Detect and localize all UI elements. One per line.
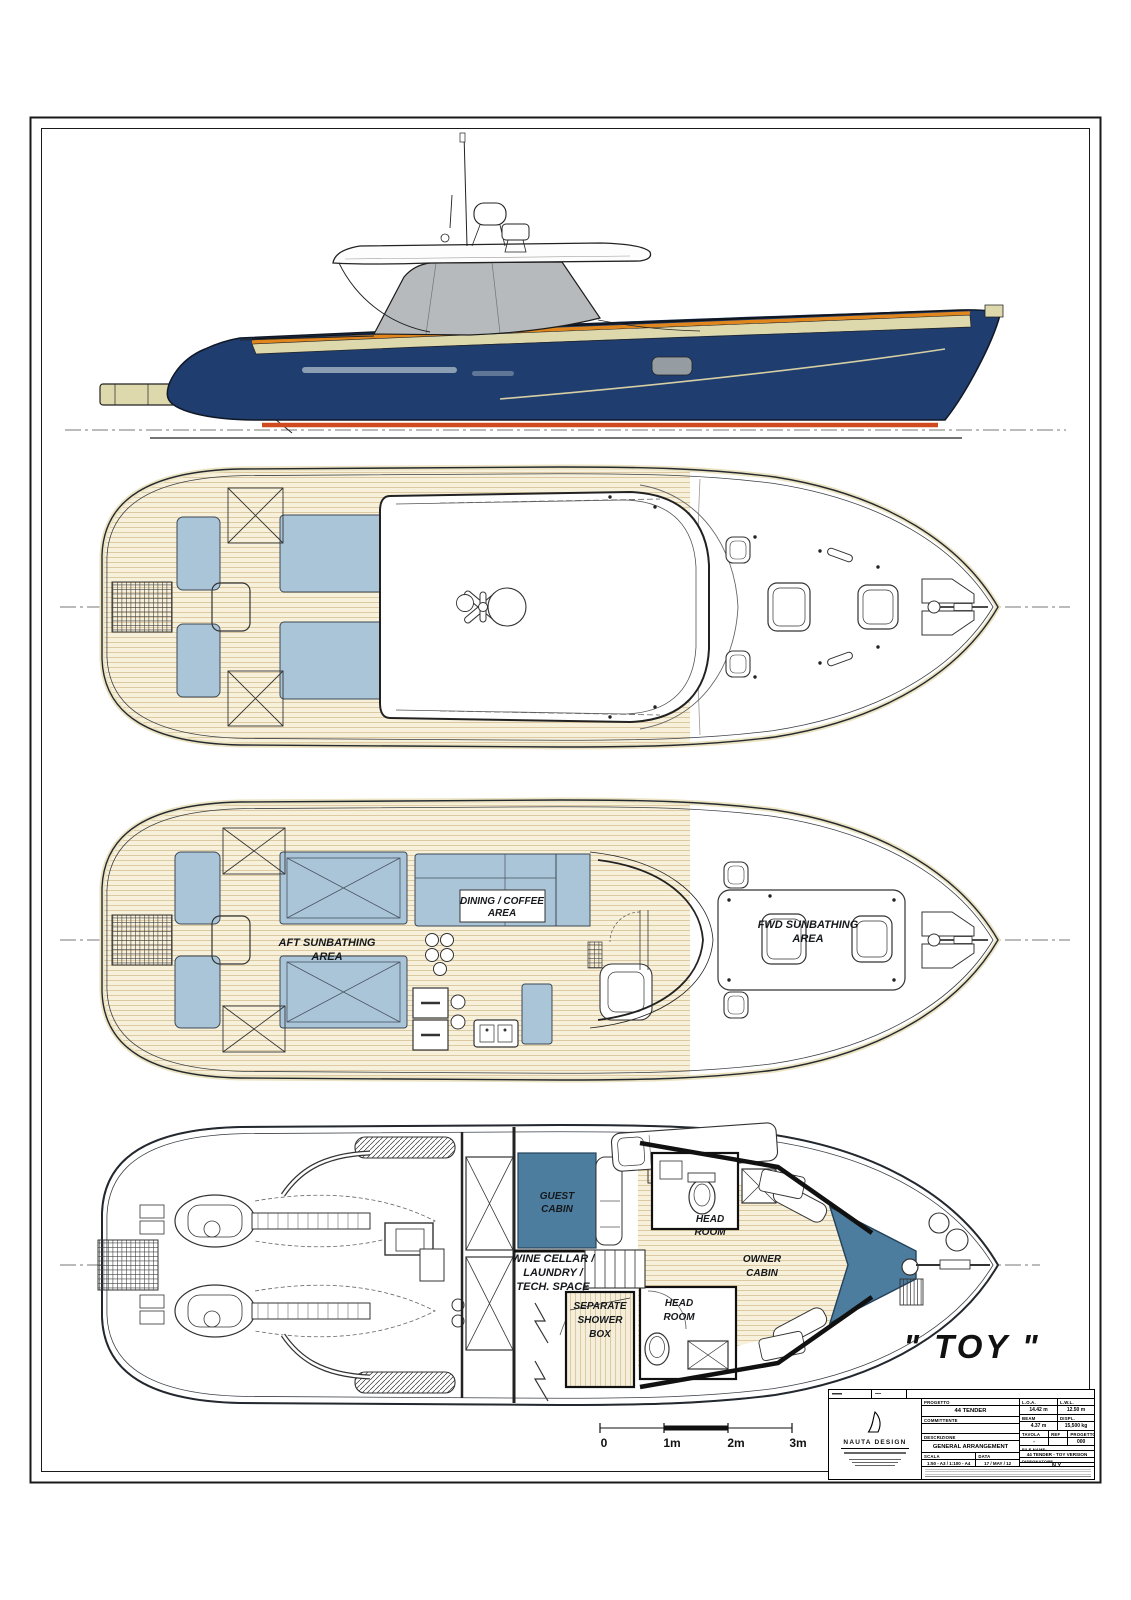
scale-tick-0: 0 xyxy=(601,1436,608,1450)
hull-highlight-2 xyxy=(472,371,514,376)
burner-icon xyxy=(451,1015,465,1029)
progetto-value: 44 TENDER xyxy=(922,1406,1019,1417)
aft-sunbathing-label: AFT SUNBATHING xyxy=(278,937,376,949)
fwd-head-room-label: HEAD xyxy=(696,1214,724,1225)
radar-dome-icon xyxy=(474,203,506,225)
progetto-label: PROGETTO xyxy=(922,1399,1019,1406)
loa-label: L.O.A. xyxy=(1020,1399,1057,1405)
profile-view xyxy=(65,133,1066,438)
stern-gate-grill xyxy=(98,1240,158,1290)
mast-and-radar xyxy=(441,133,529,252)
drawing-sheet: DINING / COFFEE AREA AFT SUNBATHING AREA… xyxy=(0,0,1131,1600)
dining-area-label-2: AREA xyxy=(487,908,516,919)
lower-deck-plan: GUEST CABIN HEAD ROOM HEAD ROOM OWNER CA… xyxy=(60,1122,1040,1405)
chain-locker xyxy=(900,1279,923,1305)
ref-label: REF xyxy=(1048,1431,1067,1437)
windshield-glass xyxy=(374,262,600,335)
toilet-icon xyxy=(689,1180,715,1214)
title-block-project-column: PROGETTO 44 TENDER COMMITTENTE DESCRIZIO… xyxy=(922,1399,1020,1466)
title-block-revision-row xyxy=(829,1390,1094,1399)
helm-console xyxy=(588,942,602,968)
title-block: NAUTA DESIGN PROGETTO 44 TENDER COMMITTE… xyxy=(828,1389,1095,1480)
aft-sunbathing-label-2: AREA xyxy=(310,951,342,963)
fwd-sunbathing-label: FWD SUNBATHING xyxy=(758,919,859,931)
hardtop-roof-plan xyxy=(380,485,738,729)
bench-seat xyxy=(522,984,552,1044)
lwl-value: 12.50 m xyxy=(1057,1406,1094,1414)
descrizione-label: DESCRIZIONE xyxy=(922,1434,1019,1441)
aft-head-room-label: HEAD xyxy=(665,1298,693,1309)
scala-label: SCALA xyxy=(922,1453,975,1459)
shower-box-label: SEPARATE xyxy=(574,1301,627,1312)
owner-cabin-label: OWNER xyxy=(743,1254,782,1265)
hull-window xyxy=(652,357,692,375)
stem-fitting xyxy=(985,305,1003,317)
wine-cellar-label-3: TECH. SPACE xyxy=(516,1281,590,1293)
displ-value: 15,500 kg xyxy=(1057,1422,1094,1430)
anchor-light-icon xyxy=(460,133,465,142)
scale-tick-1m: 1m xyxy=(663,1436,680,1450)
tank-icon xyxy=(929,1213,949,1233)
wine-cellar-label-2: LAUNDRY / xyxy=(523,1267,584,1279)
logo-tagline xyxy=(844,1452,906,1454)
displ-label: DISPL. xyxy=(1057,1415,1094,1421)
dining-area-label: DINING / COFFEE xyxy=(460,896,544,907)
guest-cabin-label: GUEST xyxy=(540,1191,575,1202)
scale-tick-3m: 3m xyxy=(789,1436,806,1450)
shower-box-label-3: BOX xyxy=(589,1329,612,1340)
wine-cellar-label: WINE CELLAR / xyxy=(512,1253,596,1265)
logo-address xyxy=(849,1459,901,1467)
scale-tick-2m: 2m xyxy=(727,1436,744,1450)
ref-value: 000 xyxy=(1067,1438,1094,1445)
general-arrangement-drawing: DINING / COFFEE AREA AFT SUNBATHING AREA… xyxy=(0,0,1131,1600)
data-label: DATA xyxy=(975,1453,1019,1459)
beam-label: BEAM xyxy=(1020,1415,1057,1421)
stern-gate-grill xyxy=(112,915,172,965)
logo-text: NAUTA DESIGN xyxy=(841,1438,908,1449)
tank-icon xyxy=(946,1229,968,1251)
descrizione-value: GENERAL ARRANGEMENT xyxy=(922,1441,1019,1453)
toilet-icon xyxy=(645,1333,669,1365)
stern-gate-grill xyxy=(112,582,172,632)
sail-logo-icon xyxy=(864,1411,886,1437)
aft-head-room-label-2: ROOM xyxy=(663,1312,695,1323)
beam-value: 4.37 m xyxy=(1020,1422,1057,1430)
shower-box-label-2: SHOWER xyxy=(578,1315,624,1326)
guest-cabin-label-2: CABIN xyxy=(541,1204,573,1215)
main-deck-plan: DINING / COFFEE AREA AFT SUNBATHING AREA… xyxy=(60,799,1070,1081)
scale-bar: 0 1m 2m 3m xyxy=(600,1423,807,1450)
top-deck-plan xyxy=(60,466,1070,748)
prog-label: PROGETTO xyxy=(1067,1431,1094,1437)
committente-label: COMMITTENTE xyxy=(922,1417,1019,1424)
title-block-dimensions-column: L.O.A. L.W.L. 14.42 m 12.50 m BEAM DISPL… xyxy=(1020,1399,1094,1466)
gps-antenna-icon xyxy=(502,224,529,240)
file-name-value: 44 TENDER - TOY VERSION xyxy=(1020,1451,1094,1458)
windlass-gear xyxy=(902,1259,918,1275)
tavola-value: - xyxy=(1020,1438,1048,1445)
fwd-sunbathing-label-2: AREA xyxy=(791,933,823,945)
nauta-design-logo: NAUTA DESIGN xyxy=(829,1399,922,1479)
sink-icon xyxy=(474,1020,518,1047)
title-block-disclaimer xyxy=(922,1466,1094,1479)
hull-highlight xyxy=(302,367,457,373)
boat-name: " TOY " xyxy=(903,1328,1040,1365)
hardtop-roof xyxy=(333,243,651,264)
committente-value xyxy=(922,1424,1019,1434)
owner-cabin-label-2: CABIN xyxy=(746,1268,778,1279)
lwl-label: L.W.L. xyxy=(1057,1399,1094,1405)
burner-icon xyxy=(451,995,465,1009)
loa-value: 14.42 m xyxy=(1020,1406,1057,1414)
fwd-head-room-label-2: ROOM xyxy=(694,1227,726,1238)
tavola-label: TAVOLA xyxy=(1020,1431,1048,1437)
